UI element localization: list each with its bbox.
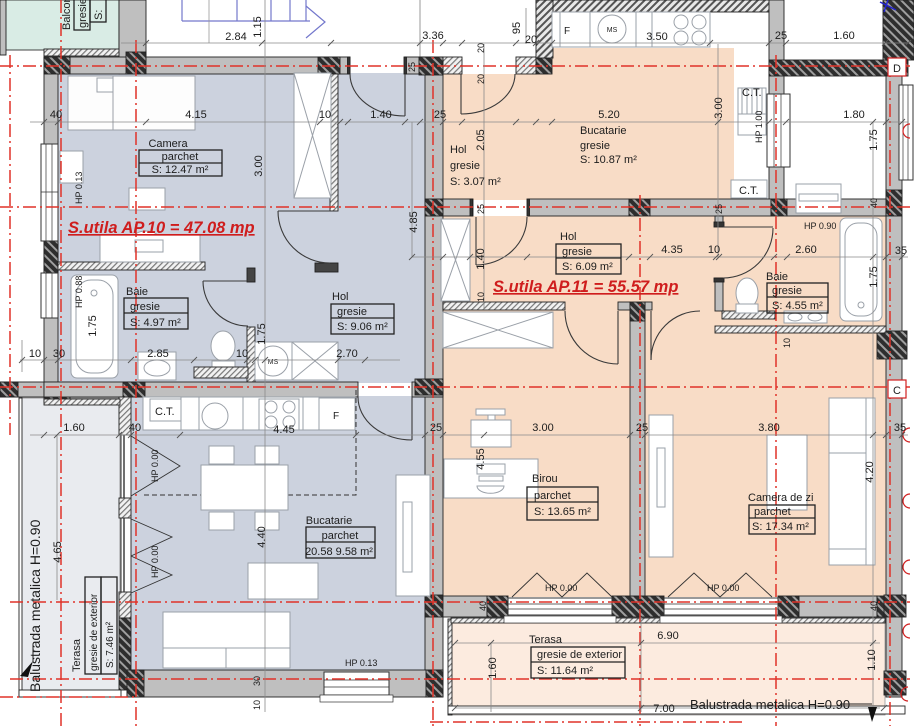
svg-text:HP 0.13: HP 0.13 bbox=[74, 172, 84, 204]
svg-text:gresie: gresie bbox=[562, 246, 592, 258]
svg-text:C.T.: C.T. bbox=[155, 406, 175, 418]
svg-text:Hol: Hol bbox=[560, 231, 577, 243]
svg-text:C: C bbox=[893, 385, 901, 397]
svg-text:Terasa: Terasa bbox=[71, 638, 83, 672]
svg-text:gresie: gresie bbox=[772, 285, 802, 297]
svg-text:95: 95 bbox=[511, 22, 523, 34]
svg-text:S:: S: bbox=[93, 10, 105, 20]
svg-text:HP 0.00: HP 0.00 bbox=[150, 546, 160, 578]
svg-text:S: 7.46 m²: S: 7.46 m² bbox=[105, 621, 116, 668]
svg-text:4.45: 4.45 bbox=[273, 424, 294, 436]
svg-text:F: F bbox=[333, 411, 339, 422]
svg-text:2.05: 2.05 bbox=[475, 129, 487, 150]
svg-text:gresie: gresie bbox=[580, 140, 610, 152]
svg-text:25: 25 bbox=[476, 204, 486, 214]
svg-text:2.84: 2.84 bbox=[225, 31, 246, 43]
svg-text:F: F bbox=[564, 26, 570, 37]
svg-text:parchet: parchet bbox=[162, 151, 199, 163]
svg-text:parchet: parchet bbox=[534, 490, 571, 502]
svg-text:25: 25 bbox=[434, 109, 446, 121]
svg-text:HP 0.88: HP 0.88 bbox=[74, 276, 84, 308]
svg-text:1.60: 1.60 bbox=[63, 422, 84, 434]
svg-text:2.60: 2.60 bbox=[795, 244, 816, 256]
svg-text:HP 1.00: HP 1.00 bbox=[754, 111, 764, 143]
svg-text:S: 17.34 m²: S: 17.34 m² bbox=[752, 521, 809, 533]
svg-text:1.75: 1.75 bbox=[868, 266, 880, 287]
svg-text:Bucatarie: Bucatarie bbox=[306, 515, 352, 527]
svg-text:40: 40 bbox=[869, 601, 879, 611]
svg-text:1.75: 1.75 bbox=[868, 129, 880, 150]
svg-text:3.00: 3.00 bbox=[532, 422, 553, 434]
svg-text:1.40: 1.40 bbox=[475, 248, 487, 269]
svg-text:Hol: Hol bbox=[450, 144, 467, 156]
svg-text:Terasa: Terasa bbox=[529, 634, 563, 646]
svg-text:40: 40 bbox=[129, 422, 141, 434]
svg-text:D: D bbox=[893, 63, 901, 75]
svg-text:S: 9.06 m²: S: 9.06 m² bbox=[337, 321, 388, 333]
svg-text:MS: MS bbox=[607, 27, 618, 34]
svg-text:gresie: gresie bbox=[450, 160, 480, 172]
svg-text:3.50: 3.50 bbox=[646, 31, 667, 43]
svg-text:parchet: parchet bbox=[322, 530, 359, 542]
svg-text:7.00: 7.00 bbox=[653, 703, 674, 715]
svg-text:S: 12.47 m²: S: 12.47 m² bbox=[152, 164, 209, 176]
svg-text:4.65: 4.65 bbox=[52, 541, 64, 562]
svg-text:30: 30 bbox=[53, 348, 65, 360]
svg-text:gresie: gresie bbox=[77, 0, 89, 28]
svg-text:10: 10 bbox=[29, 348, 41, 360]
svg-text:5.20: 5.20 bbox=[598, 109, 619, 121]
svg-text:4.40: 4.40 bbox=[256, 526, 268, 547]
svg-text:35: 35 bbox=[895, 245, 907, 257]
svg-text:Hol: Hol bbox=[332, 291, 349, 303]
svg-text:30: 30 bbox=[252, 676, 262, 686]
svg-text:S: 4.97 m²: S: 4.97 m² bbox=[130, 317, 181, 329]
svg-text:1.60: 1.60 bbox=[487, 657, 499, 678]
svg-text:3.80: 3.80 bbox=[758, 422, 779, 434]
svg-text:2.85: 2.85 bbox=[147, 348, 168, 360]
svg-text:Baie: Baie bbox=[766, 271, 788, 283]
svg-text:10: 10 bbox=[782, 338, 792, 348]
svg-text:40: 40 bbox=[478, 601, 488, 611]
svg-text:1.60: 1.60 bbox=[833, 30, 854, 42]
svg-text:4.15: 4.15 bbox=[185, 109, 206, 121]
svg-text:10: 10 bbox=[236, 348, 248, 360]
svg-text:Balustrada metalica H=0.90: Balustrada metalica H=0.90 bbox=[690, 697, 850, 712]
svg-text:25: 25 bbox=[430, 422, 442, 434]
svg-text:40: 40 bbox=[869, 198, 879, 208]
svg-text:S.utila AP.11 = 55.57 mp: S.utila AP.11 = 55.57 mp bbox=[493, 278, 678, 296]
svg-text:HP 0.00: HP 0.00 bbox=[545, 583, 577, 593]
svg-text:20: 20 bbox=[476, 43, 486, 53]
svg-text:gresie de exterior: gresie de exterior bbox=[89, 593, 100, 671]
svg-text:1.75: 1.75 bbox=[256, 323, 268, 344]
svg-text:HP 0.13: HP 0.13 bbox=[345, 658, 377, 668]
svg-text:1.10: 1.10 bbox=[866, 649, 878, 670]
svg-text:C.T.: C.T. bbox=[739, 185, 759, 197]
svg-text:Birou: Birou bbox=[532, 473, 558, 485]
svg-text:Balcon: Balcon bbox=[61, 0, 73, 30]
svg-text:S: 4.55 m²: S: 4.55 m² bbox=[772, 300, 823, 312]
svg-text:HP 0.00: HP 0.00 bbox=[707, 583, 739, 593]
svg-text:1.40: 1.40 bbox=[370, 109, 391, 121]
svg-text:1.75: 1.75 bbox=[87, 315, 99, 336]
svg-text:4.85: 4.85 bbox=[408, 211, 420, 232]
svg-text:10: 10 bbox=[476, 292, 486, 302]
svg-text:25: 25 bbox=[775, 30, 787, 42]
svg-text:10: 10 bbox=[319, 109, 331, 121]
svg-text:Baie: Baie bbox=[126, 286, 148, 298]
svg-text:10: 10 bbox=[708, 244, 720, 256]
svg-text:gresie de exterior: gresie de exterior bbox=[537, 649, 622, 661]
svg-text:HP 0.00: HP 0.00 bbox=[150, 450, 160, 482]
svg-text:1.80: 1.80 bbox=[843, 109, 864, 121]
svg-text:3.00: 3.00 bbox=[253, 155, 265, 176]
svg-text:4.55: 4.55 bbox=[475, 448, 487, 469]
svg-text:4.35: 4.35 bbox=[661, 244, 682, 256]
svg-text:35: 35 bbox=[894, 422, 906, 434]
svg-text:Camera: Camera bbox=[148, 138, 188, 150]
svg-text:S: 3.07 m²: S: 3.07 m² bbox=[450, 176, 501, 188]
svg-text:25: 25 bbox=[407, 62, 417, 72]
svg-text:1.15: 1.15 bbox=[252, 16, 264, 37]
svg-text:2.70: 2.70 bbox=[336, 348, 357, 360]
svg-text:Camera de zi: Camera de zi bbox=[748, 492, 813, 504]
svg-text:S: 13.65 m²: S: 13.65 m² bbox=[534, 506, 591, 518]
svg-text:HP 0.90: HP 0.90 bbox=[804, 221, 836, 231]
svg-text:3.00: 3.00 bbox=[713, 97, 725, 118]
svg-text:C.T.: C.T. bbox=[742, 87, 762, 99]
svg-text:40: 40 bbox=[50, 109, 62, 121]
svg-text:gresie: gresie bbox=[337, 306, 367, 318]
svg-text:S: 6.09 m²: S: 6.09 m² bbox=[562, 261, 613, 273]
svg-text:parchet: parchet bbox=[754, 506, 791, 518]
svg-text:25: 25 bbox=[714, 204, 724, 214]
svg-text:6.90: 6.90 bbox=[657, 630, 678, 642]
svg-text:25: 25 bbox=[636, 422, 648, 434]
svg-text:20: 20 bbox=[525, 34, 537, 46]
svg-text:S: 11.64 m²: S: 11.64 m² bbox=[537, 665, 593, 677]
svg-text:20.58 9.58 m²: 20.58 9.58 m² bbox=[305, 546, 373, 558]
svg-text:20: 20 bbox=[476, 74, 486, 84]
svg-text:4.20: 4.20 bbox=[864, 461, 876, 482]
svg-text:3.36: 3.36 bbox=[422, 30, 443, 42]
svg-text:10: 10 bbox=[252, 700, 262, 710]
svg-text:Bucatarie: Bucatarie bbox=[580, 125, 626, 137]
svg-text:S.utila AP.10 = 47.08 mp: S.utila AP.10 = 47.08 mp bbox=[68, 219, 255, 237]
svg-text:S: 10.87 m²: S: 10.87 m² bbox=[580, 154, 637, 166]
svg-text:gresie: gresie bbox=[130, 301, 160, 313]
